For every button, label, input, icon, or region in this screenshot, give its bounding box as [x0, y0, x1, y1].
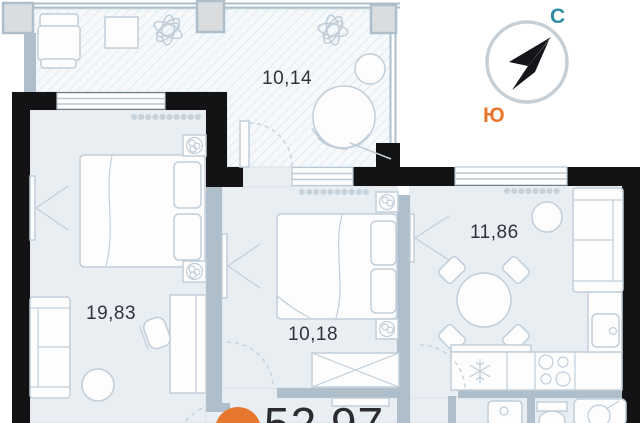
- sink-icon: [592, 314, 619, 347]
- side-table-icon: [105, 17, 138, 48]
- bedroom-2-area-label: 10,18: [288, 324, 338, 345]
- compass: С Ю: [483, 5, 567, 127]
- bathroom: [488, 399, 626, 423]
- nightstand-icon: [183, 135, 206, 156]
- sofa-icon: [30, 297, 70, 398]
- window: [292, 168, 353, 186]
- compass-south-label: Ю: [483, 104, 505, 127]
- column: [3, 3, 33, 33]
- nightstand-icon: [183, 261, 206, 282]
- balcony-door-threshold: [243, 167, 292, 187]
- bed-icon: [277, 214, 397, 319]
- nightstand-icon: [376, 192, 398, 212]
- compass-north-label: С: [550, 5, 565, 28]
- column: [197, 1, 224, 32]
- desk-icon: [170, 295, 206, 393]
- window: [57, 93, 165, 109]
- column: [371, 5, 396, 33]
- round-pot-icon: [355, 54, 385, 84]
- window: [455, 167, 567, 185]
- wardrobe-icon: [312, 353, 399, 387]
- kitchen-area-label: 11,86: [470, 222, 519, 243]
- bed-icon: [80, 155, 205, 267]
- nightstand-icon: [376, 319, 398, 339]
- pouf-icon: [82, 369, 114, 401]
- washbasin-icon: [488, 401, 522, 423]
- plant-pot-icon: [532, 202, 562, 232]
- shower-sink-icon: [574, 399, 626, 423]
- floor-plan-page: 10,14: [0, 0, 640, 423]
- sofa-icon: [573, 188, 623, 292]
- balcony-area-label: 10,14: [262, 68, 312, 89]
- floor-plan: 10,14: [0, 0, 640, 423]
- total-area-label: 52,97: [264, 398, 384, 423]
- armchair-icon: [38, 14, 80, 68]
- bedroom-1-area-label: 19,83: [86, 303, 136, 324]
